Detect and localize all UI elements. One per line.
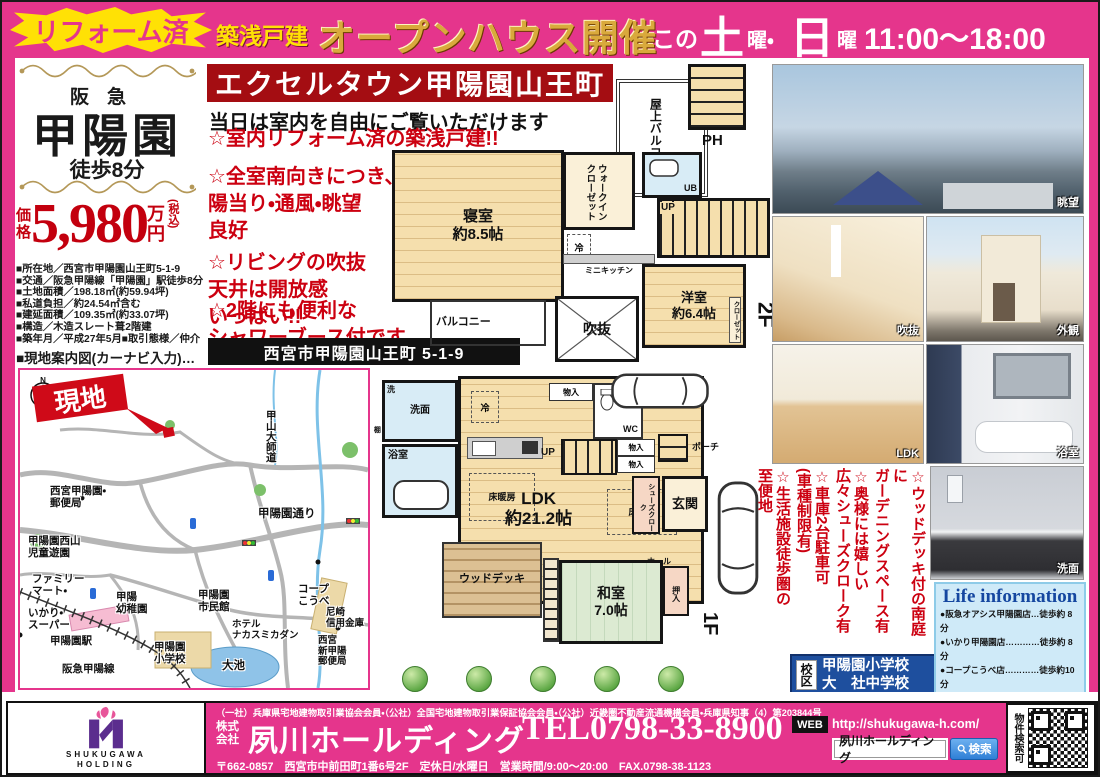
photo-washstand: 洗面 <box>930 466 1084 580</box>
door-shape <box>993 283 1015 321</box>
price-tax-note: (税込) <box>165 199 181 251</box>
shukugawa-logo-icon <box>79 706 133 750</box>
company-name: 夙川ホールディング <box>248 716 525 760</box>
banner-subtitle: 築浅戸建 <box>216 17 308 51</box>
right-sales-points: ☆ウッドデッキ付の南庭に ガーデニングスペース有 ☆奥様には嬉しい 広々シューズ… <box>774 468 926 650</box>
bedroom-label: 寝室 約8.5帖 <box>395 153 561 299</box>
sales-point-1: ☆室内リフォーム済の築浅戸建!! <box>208 126 499 153</box>
oshiire-label: 押入 <box>671 574 681 614</box>
search-button-label: 検索 <box>969 741 992 757</box>
development-title: エクセルタウン甲陽園山王町 <box>207 64 613 102</box>
logo-text-line1: SHUKUGAWA <box>66 750 146 760</box>
frame-right <box>1089 58 1100 701</box>
window-shape <box>831 225 841 277</box>
tub-icon <box>649 159 679 177</box>
wood-deck: ウッドデッキ <box>442 542 542 618</box>
flyer-page: リフォーム済 築浅戸建 オープンハウス開催 この 土 曜・ 日 曜 11:00〜… <box>0 0 1100 777</box>
entry-steps <box>658 434 688 462</box>
company-logo-box: SHUKUGAWA HOLDING <box>8 703 206 773</box>
junior-high-name: 大 社中学校 <box>822 675 909 693</box>
tree-icon <box>658 666 684 692</box>
map-label-kindergarten: 甲陽 幼稚園 <box>116 592 148 616</box>
storage-b: 物入 <box>617 456 655 473</box>
map-label-post-office-1: 西宮甲陽園・ 郵便局 <box>50 486 106 510</box>
entrance-room: 玄関 <box>662 476 708 532</box>
detail-private-road: ■私道負担／約24.54㎡含む <box>16 299 208 311</box>
office-info-line: 〒662-0857 西宮市中前田町1番6号2F 定休日/水曜日 営業時間/9:0… <box>216 758 711 774</box>
right-point-3: ☆車庫2台駐車可 (車種制限有) <box>794 468 830 650</box>
map-label-hankyu-line: 阪急甲陽線 <box>62 664 115 676</box>
right-point-4: ☆生活施設徒歩圏の 至便地 <box>755 468 791 650</box>
closet-2f-label: クローゼット <box>729 297 741 343</box>
photo-bathroom: 浴室 <box>926 344 1084 464</box>
life-item-2: ●いかり甲陽園店…………徒歩約 8 分 <box>940 636 1080 664</box>
schedule-prefix: この <box>652 20 698 54</box>
tree-icon <box>466 666 492 692</box>
photo-void-label: 吹抜 <box>897 322 919 338</box>
detail-land-area: ■土地面積／198.18㎡(約59.94坪) <box>16 287 208 299</box>
map-label-ikari-super: いかり・ スーパー <box>28 608 70 632</box>
flourish-ornament-top <box>18 64 196 78</box>
kitchen-counter <box>467 437 543 459</box>
stairs-1f-up-label: UP <box>541 447 555 459</box>
wood-deck-label: ウッドデッキ <box>444 544 540 616</box>
stairs-1f <box>561 439 617 475</box>
washroom-label: 洗面 <box>385 383 455 439</box>
top-banner: リフォーム済 築浅戸建 オープンハウス開催 この 土 曜・ 日 曜 11:00〜… <box>2 2 1100 58</box>
photo-view-label: 眺望 <box>1057 194 1079 210</box>
bathroom-label: 浴室 <box>388 450 408 462</box>
tree-icon <box>594 666 620 692</box>
photo-exterior-label: 外観 <box>1057 322 1079 338</box>
map-label-hotel: ホテル ナカスミカダン <box>232 620 299 641</box>
porch-label: ポーチ <box>692 442 719 453</box>
price-block: 価 格 5,980 万 円 (税込) <box>16 198 206 251</box>
life-item-1: ●阪急オアシス甲陽園店…徒歩約 8 分 <box>940 608 1080 636</box>
schedule-sunday: 日 <box>790 2 834 66</box>
access-map: N 現地 甲山大師道 西宮甲陽園・ 郵便局 甲陽園通り 甲陽園西山 児童遊園 フ… <box>18 368 370 690</box>
shoe-cloak: シューズクローク <box>632 476 660 534</box>
price-unit: 万 円 <box>147 205 165 245</box>
photo-void-interior: 吹抜 <box>772 216 924 342</box>
map-label-pond: 大池 <box>222 660 245 673</box>
bathtub-icon <box>393 480 449 510</box>
oshiire-closet: 押入 <box>663 566 689 616</box>
fridge-1f: 冷 <box>471 391 499 423</box>
balcony-2f: バルコニー <box>430 300 546 346</box>
map-caption: ■現地案内図(カーナビ入力)… <box>16 347 195 367</box>
shoe-cloak-label: シューズクローク <box>638 481 655 533</box>
price-label: 価 格 <box>16 208 31 241</box>
map-label-station: 甲陽園駅 <box>50 636 92 648</box>
qr-panel: 物件検索可 <box>1006 703 1096 773</box>
map-label-elementary: 甲陽園 小学校 <box>154 642 186 666</box>
ldk-label: LDK 約21.2帖 <box>505 489 572 530</box>
website-url: http://shukugawa-h.com/ <box>832 717 979 731</box>
storage-a: 物入 <box>617 439 655 456</box>
life-item-3: ●コープこうべ店…………徒歩約10分 <box>940 664 1080 692</box>
japanese-room: 和室 7.0帖 <box>559 560 663 644</box>
photo-bathroom-label: 浴室 <box>1057 444 1079 460</box>
photo-washstand-label: 洗面 <box>1057 560 1079 576</box>
qr-caption: 物件検索可 <box>1010 713 1025 763</box>
map-label-koyoen-dori: 甲陽園通り <box>258 508 316 521</box>
schedule-sat-suffix: 曜・ <box>747 24 774 53</box>
frame-left <box>2 58 15 701</box>
reform-burst-label: リフォーム済 <box>33 12 188 49</box>
reform-burst-badge: リフォーム済 <box>10 7 212 53</box>
photo-ldk-label: LDK <box>896 448 919 460</box>
sales-point-2: ☆全室南向きにつき、 陽当り・通風・眺望 良好 <box>208 164 405 245</box>
walkin-closet-label: ウォークインクローゼット <box>584 160 607 224</box>
tree-icon <box>530 666 556 692</box>
void-space: 吹抜 <box>555 296 639 362</box>
balcony-2f-label: バルコニー <box>436 316 491 329</box>
company-prefix: 株式 会社 <box>216 721 239 747</box>
schedule-time: 11:00〜18:00 <box>864 14 1046 58</box>
elementary-school-name: 甲陽園小学校 <box>822 657 909 675</box>
kitchen-sink-icon <box>472 441 496 456</box>
logo-text-line2: HOLDING <box>77 760 135 770</box>
engawa-strip <box>543 558 559 642</box>
detail-building-area: ■建延面積／109.35㎡(約33.07坪) <box>16 310 208 322</box>
detail-built-date: ■築年月／平成27年5月■取引態様／仲介 <box>16 334 208 346</box>
detail-location: ■所在地／西宮市甲陽園山王町5-1-9 <box>16 264 208 276</box>
map-label-post-office-2: 西宮 新甲陽 郵便局 <box>318 636 347 668</box>
western-room-2f: 洋室 約6.4帖 クローゼット <box>642 264 746 348</box>
right-point-2: ☆奥様には嬉しい 広々シューズクローク有 <box>833 468 869 650</box>
window-shape <box>947 475 963 503</box>
map-label-familymart: ファミリー マート・ <box>32 574 85 598</box>
tree-icon <box>402 666 428 692</box>
map-label-coop: コープ こうべ <box>298 584 330 608</box>
walkin-closet: ウォークインクローゼット <box>563 152 635 230</box>
japanese-room-label: 和室 7.0帖 <box>562 563 660 641</box>
schedule-saturday: 土 <box>700 2 744 66</box>
roof-shape <box>943 183 1053 209</box>
search-button: 検索 <box>950 738 998 760</box>
ph-label: PH <box>702 132 723 150</box>
shelf-label: 棚 <box>372 426 380 433</box>
bedroom-2f: 寝室 約8.5帖 <box>392 150 564 302</box>
flourish-ornament-bottom <box>18 180 196 194</box>
property-details: ■所在地／西宮市甲陽園山王町5-1-9 ■交通／阪急甲陽線「甲陽園」駅徒歩8分 … <box>16 264 208 345</box>
entrance-label: 玄関 <box>665 479 705 529</box>
school-district-label: 校区 <box>796 660 817 690</box>
qr-code-icon <box>1028 708 1088 768</box>
life-information-title: Life information <box>940 587 1080 608</box>
right-point-1: ☆ウッドデッキ付の南庭に ガーデニングスペース有 <box>872 468 926 650</box>
schedule-sun-suffix: 曜 <box>837 24 857 53</box>
roof-shape <box>833 171 923 205</box>
car-icon-1 <box>610 364 710 418</box>
bathroom-1f: 浴室 <box>382 444 458 518</box>
photo-exterior: 外観 <box>926 216 1084 342</box>
storage-top: 物入 <box>549 383 593 401</box>
map-label-koyama-daishido: 甲山大師道 <box>264 410 276 520</box>
detail-access: ■交通／阪急甲陽線「甲陽園」駅徒歩8分 <box>16 276 208 288</box>
ph-stairs <box>688 64 746 130</box>
window-shape <box>993 353 1071 399</box>
map-label-civic-hall: 甲陽園 市民館 <box>198 590 230 614</box>
openhouse-title: オープンハウス開催 <box>318 8 658 62</box>
wc-label: WC <box>623 424 638 435</box>
photo-view: 眺望 <box>772 64 1084 214</box>
unit-bath-label: UB <box>684 183 697 194</box>
floor-label-1f: 1F <box>698 612 722 635</box>
unit-bath-2f: UB <box>642 152 702 198</box>
magnifier-icon <box>957 744 967 754</box>
price-value: 5,980 <box>31 198 147 251</box>
photo-ldk: LDK <box>772 344 924 464</box>
stairs-2f-up-label: UP <box>660 202 676 214</box>
map-label-park: 甲陽園西山 児童遊園 <box>28 536 81 560</box>
phone-number: TEL0798-33-8900 <box>522 710 783 748</box>
stove-icon <box>522 441 538 454</box>
detail-structure: ■構造／木造スレート葺2階建 <box>16 322 208 334</box>
map-label-bank: 尼崎 信用金庫 <box>326 608 364 629</box>
void-label: 吹抜 <box>558 299 636 359</box>
mini-kitchen-counter <box>563 254 655 264</box>
search-input: 夙川ホールディング <box>832 738 948 760</box>
washroom-1f: 洗 洗面 <box>382 380 458 442</box>
web-label: WEB <box>792 716 828 733</box>
